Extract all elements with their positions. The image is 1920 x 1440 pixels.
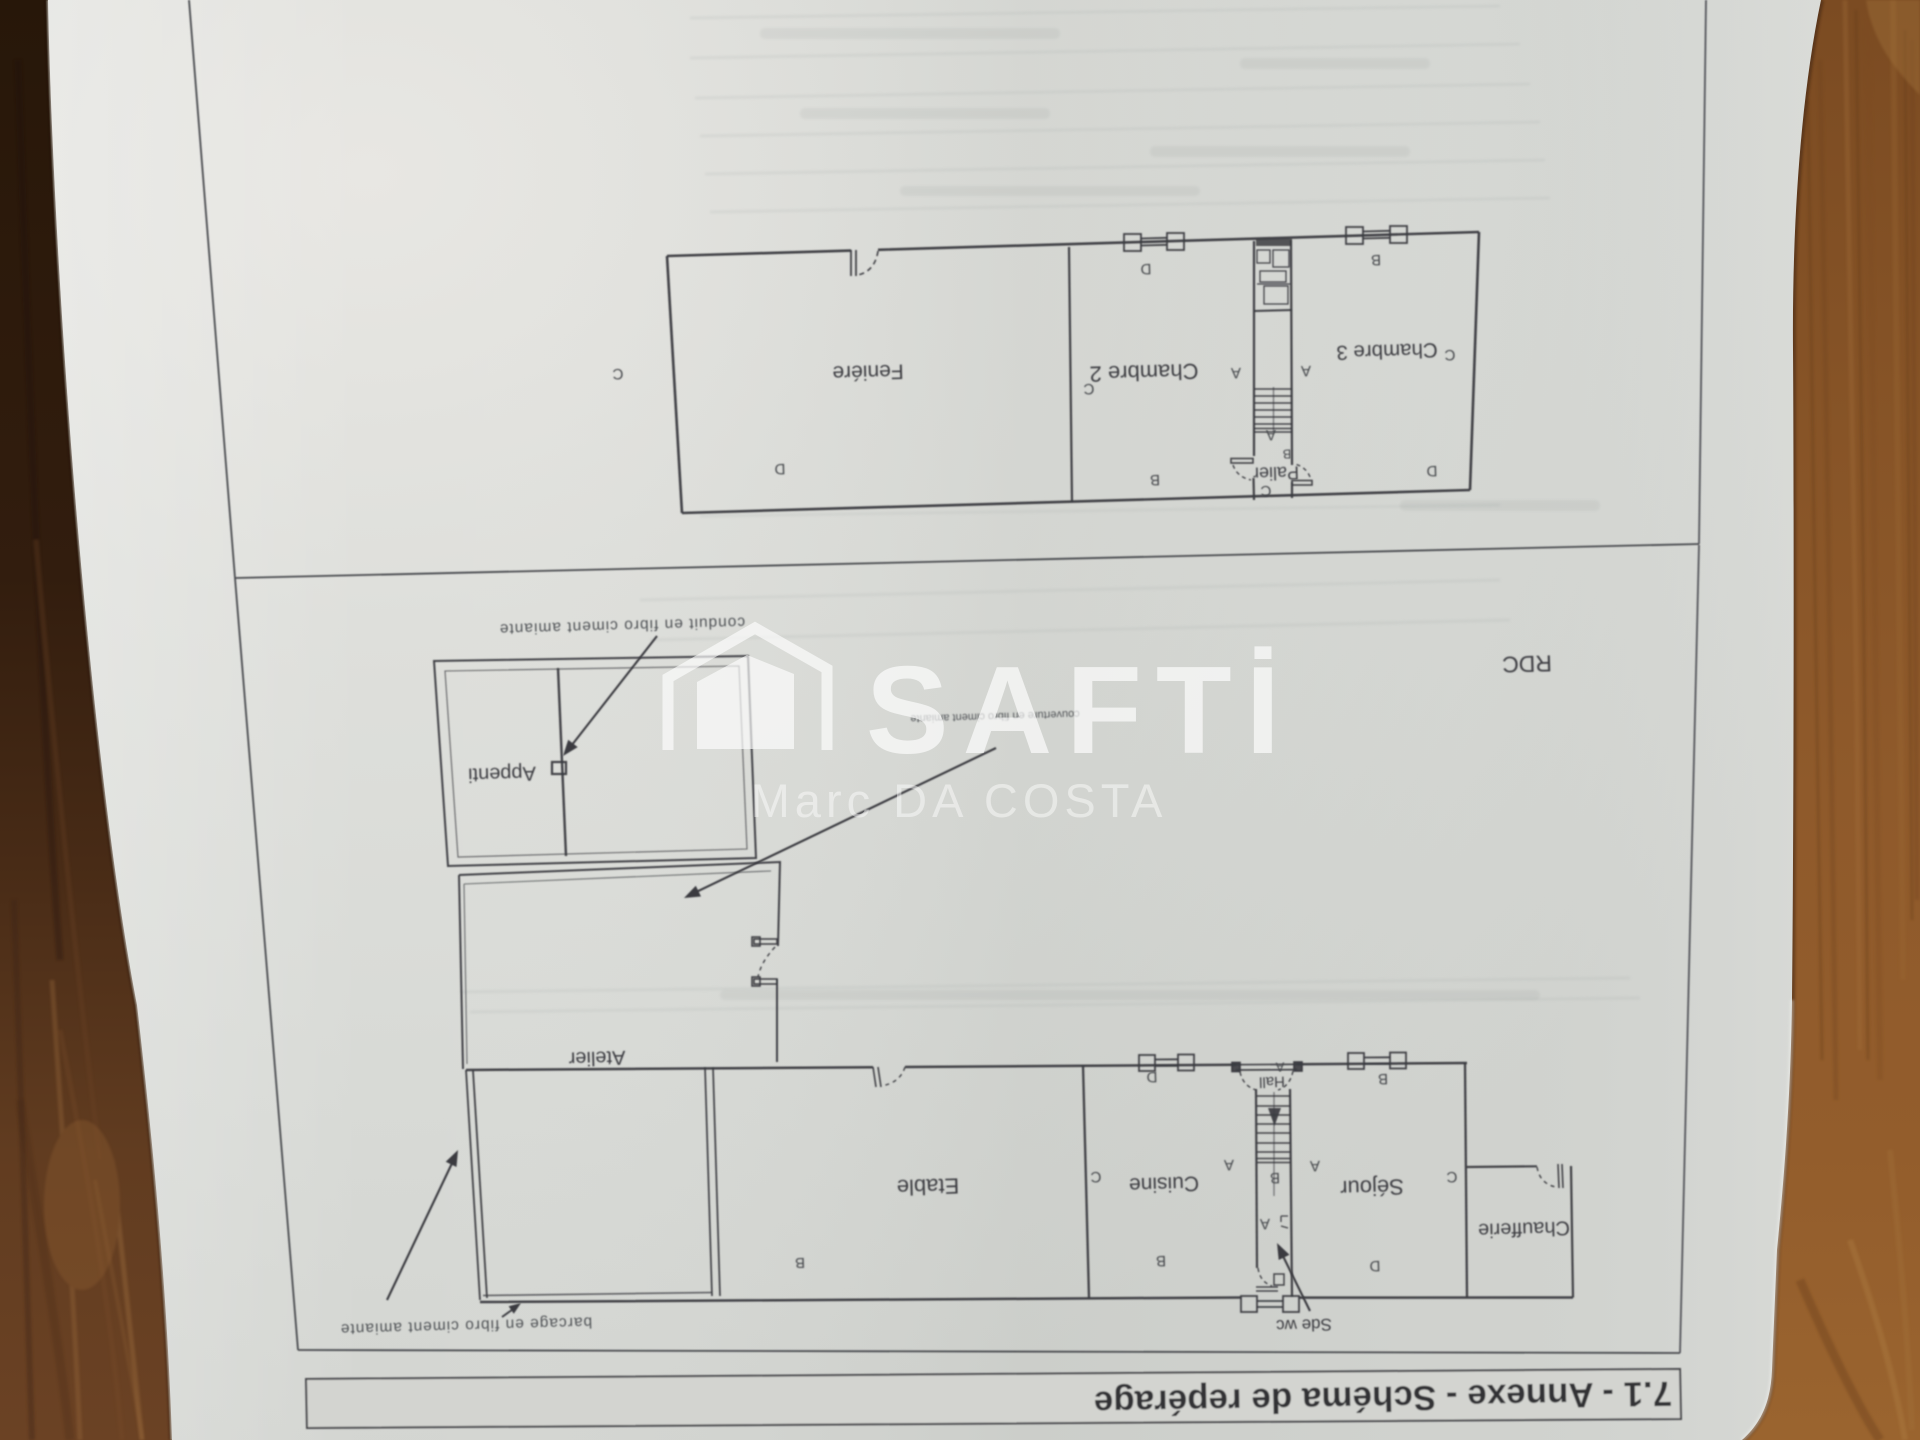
svg-text:B: B	[1270, 1169, 1280, 1186]
svg-text:Chaufferie: Chaufferie	[1478, 1216, 1571, 1241]
svg-text:Chambre 3: Chambre 3	[1336, 338, 1438, 364]
svg-text:Feniére: Feniére	[832, 359, 904, 384]
svg-text:A: A	[1224, 1156, 1234, 1173]
svg-text:Séjour: Séjour	[1340, 1174, 1404, 1201]
svg-text:B: B	[1378, 1070, 1388, 1087]
svg-text:C: C	[612, 365, 623, 382]
svg-text:B: B	[1156, 1252, 1166, 1269]
svg-text:D: D	[1369, 1257, 1380, 1274]
svg-text:Etable: Etable	[897, 1173, 960, 1200]
svg-text:Appenti: Appenti	[468, 762, 536, 786]
svg-text:SAFTİ: SAFTİ	[866, 642, 1294, 780]
svg-text:C: C	[1090, 1168, 1101, 1185]
svg-text:B: B	[1282, 446, 1291, 461]
svg-text:A: A	[1301, 362, 1311, 379]
svg-text:A: A	[1260, 1215, 1270, 1232]
svg-text:A: A	[1266, 426, 1276, 443]
svg-text:D: D	[774, 460, 785, 477]
svg-text:C: C	[1444, 346, 1455, 363]
svg-text:C: C	[1446, 1168, 1457, 1185]
svg-text:A: A	[1231, 364, 1241, 381]
svg-text:D: D	[1426, 462, 1437, 479]
svg-text:A: A	[1275, 1059, 1284, 1074]
svg-text:Chambre 2: Chambre 2	[1089, 359, 1198, 387]
svg-text:C: C	[1260, 482, 1271, 499]
svg-text:RDC: RDC	[1502, 650, 1553, 677]
svg-text:Atelier: Atelier	[568, 1046, 626, 1070]
svg-text:A: A	[1310, 1157, 1320, 1174]
svg-text:B: B	[1371, 251, 1381, 268]
svg-text:Marc DA COSTA: Marc DA COSTA	[751, 774, 1168, 827]
svg-text:Cuisine: Cuisine	[1129, 1171, 1200, 1196]
svg-text:Sde wc: Sde wc	[1275, 1315, 1332, 1336]
svg-text:Palier: Palier	[1253, 463, 1300, 484]
svg-text:D: D	[1146, 1068, 1157, 1085]
svg-text:B: B	[795, 1254, 805, 1271]
svg-text:D: D	[1140, 260, 1151, 277]
svg-text:C: C	[1083, 380, 1094, 397]
svg-text:B: B	[1150, 471, 1160, 488]
